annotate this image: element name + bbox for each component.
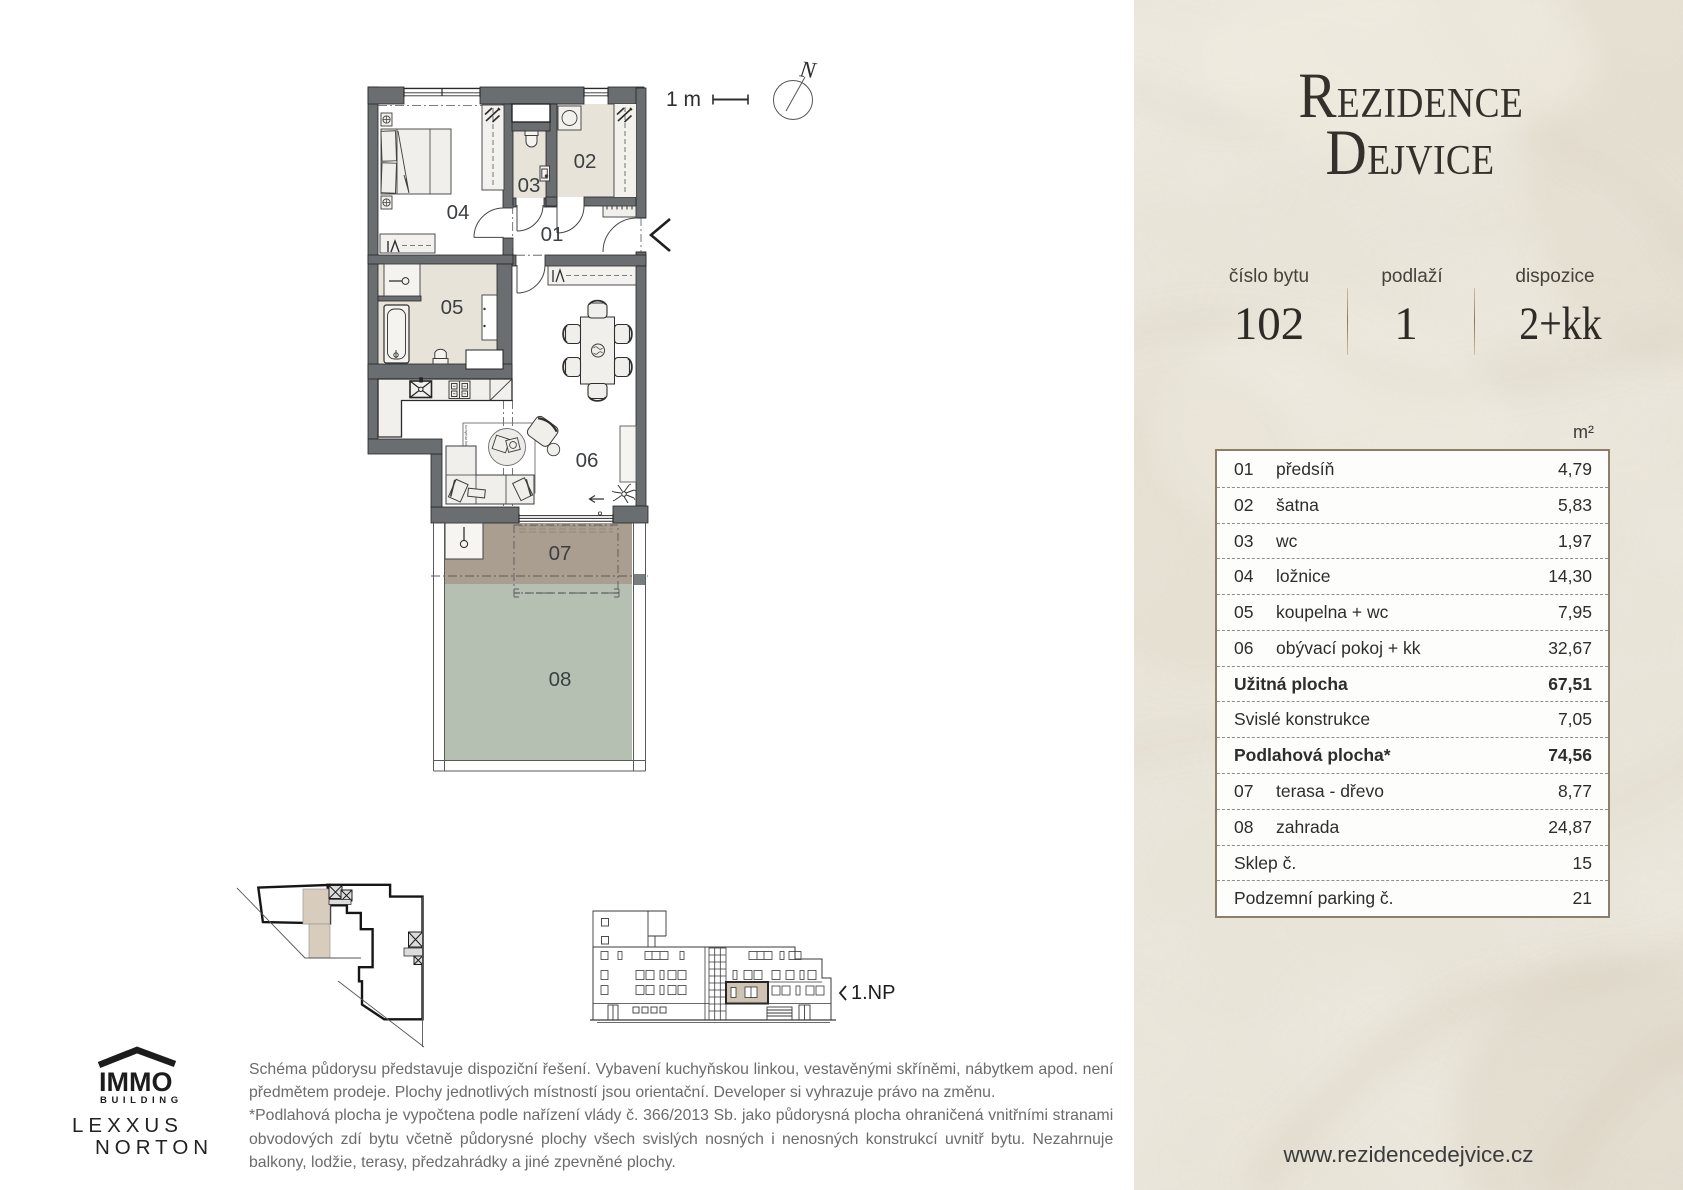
svg-text:1 m: 1 m — [666, 88, 701, 111]
svg-text:IMMO: IMMO — [99, 1067, 173, 1097]
svg-text:1.NP: 1.NP — [851, 982, 895, 1004]
svg-text:08: 08 — [549, 668, 572, 691]
svg-text:07: 07 — [549, 542, 572, 565]
svg-text:05: 05 — [441, 296, 464, 319]
svg-text:BUILDING: BUILDING — [100, 1095, 183, 1106]
svg-text:04: 04 — [447, 201, 470, 224]
svg-text:03: 03 — [518, 174, 541, 197]
svg-text:02: 02 — [574, 150, 597, 173]
svg-text:01: 01 — [541, 223, 564, 246]
svg-text:06: 06 — [576, 449, 599, 472]
svg-text:N: N — [797, 56, 818, 83]
